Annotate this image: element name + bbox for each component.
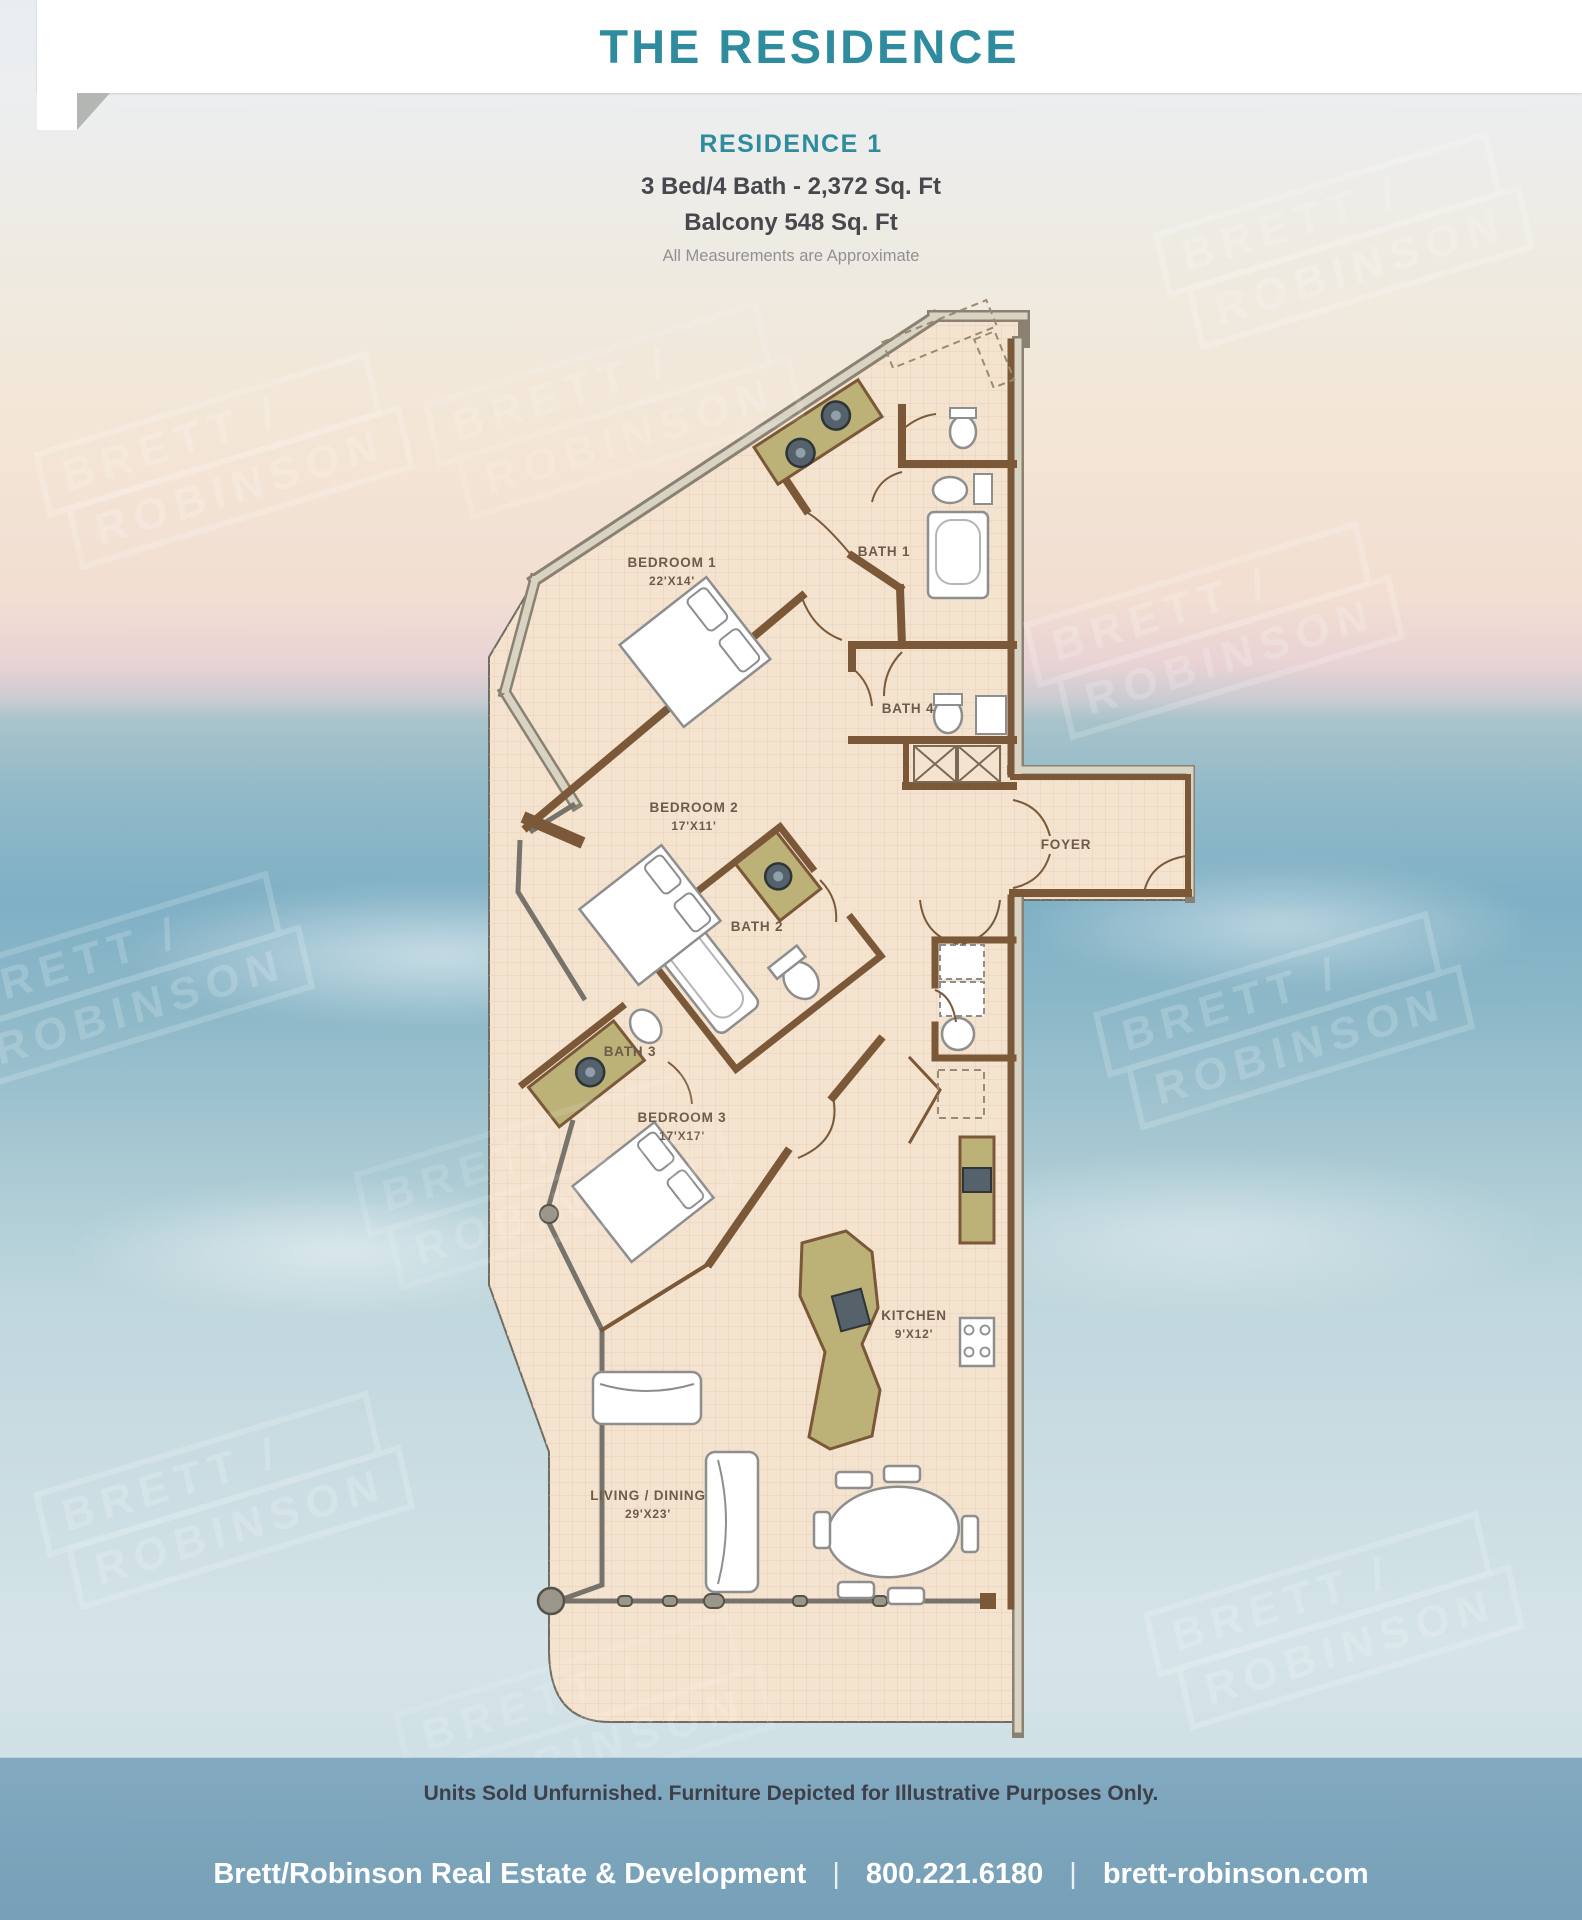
label-bedroom3: BEDROOM 3 xyxy=(638,1110,727,1125)
brett-robinson-watermark: BRETT / ROBINSON xyxy=(0,870,296,1096)
balcony-line: Balcony 548 Sq. Ft xyxy=(0,209,1582,237)
label-bedroom1: BEDROOM 1 xyxy=(628,555,717,570)
watermark-line2: ROBINSON xyxy=(66,1444,416,1611)
closet-shelves xyxy=(914,746,1000,782)
disclaimer-text: Units Sold Unfurnished. Furniture Depict… xyxy=(0,1782,1582,1806)
watermark-line1: BRETT / xyxy=(0,870,283,1037)
flyer-page: THE RESIDENCE RESIDENCE 1 3 Bed/4 Bath -… xyxy=(0,0,1582,1920)
specs-line: 3 Bed/4 Bath - 2,372 Sq. Ft xyxy=(0,173,1582,201)
label-bath2: BATH 2 xyxy=(731,919,784,934)
intro-block: RESIDENCE 1 3 Bed/4 Bath - 2,372 Sq. Ft … xyxy=(0,130,1582,266)
footer-company: Brett/Robinson Real Estate & Development xyxy=(213,1858,806,1891)
label-bedroom3-dim: 17'X17' xyxy=(659,1129,705,1143)
watermark-line2: ROBINSON xyxy=(1176,1564,1526,1731)
floorplan-svg: BEDROOM 1 22'X14' BATH 1 BATH 4 FOYER BE… xyxy=(470,280,1210,1750)
brett-robinson-watermark: BRETT / ROBINSON xyxy=(33,1390,396,1616)
watermark-line2: ROBINSON xyxy=(0,924,315,1091)
watermark-line1: BRETT / xyxy=(33,350,383,517)
label-bedroom2: BEDROOM 2 xyxy=(650,800,739,815)
footer-website: brett-robinson.com xyxy=(1103,1858,1369,1891)
label-bath1: BATH 1 xyxy=(858,544,911,559)
page-title: THE RESIDENCE xyxy=(599,19,1019,74)
label-living-dim: 29'X23' xyxy=(625,1507,671,1521)
watermark-line1: BRETT / xyxy=(33,1390,383,1557)
footer-separator: | xyxy=(1069,1858,1077,1891)
label-living: LIVING / DINING xyxy=(590,1488,706,1503)
label-bath3: BATH 3 xyxy=(604,1044,657,1059)
label-bath4: BATH 4 xyxy=(882,701,935,716)
ribbon-tail xyxy=(37,93,77,130)
label-bedroom2-dim: 17'X11' xyxy=(671,819,716,833)
label-kitchen: KITCHEN xyxy=(881,1308,947,1323)
residence-subtitle: RESIDENCE 1 xyxy=(0,130,1582,159)
footer-separator: | xyxy=(832,1858,840,1891)
label-foyer: FOYER xyxy=(1041,837,1092,852)
watermark-line2: ROBINSON xyxy=(66,404,416,571)
label-bedroom1-dim: 22'X14' xyxy=(649,574,695,588)
header-bar: THE RESIDENCE xyxy=(37,0,1582,93)
brett-robinson-watermark: BRETT / ROBINSON xyxy=(33,350,396,576)
footer-phone: 800.221.6180 xyxy=(866,1858,1043,1891)
measurements-note: All Measurements are Approximate xyxy=(0,247,1582,266)
footer-contact: Brett/Robinson Real Estate & Development… xyxy=(0,1858,1582,1891)
ribbon-fold xyxy=(77,93,110,130)
label-kitchen-dim: 9'X12' xyxy=(895,1327,934,1341)
